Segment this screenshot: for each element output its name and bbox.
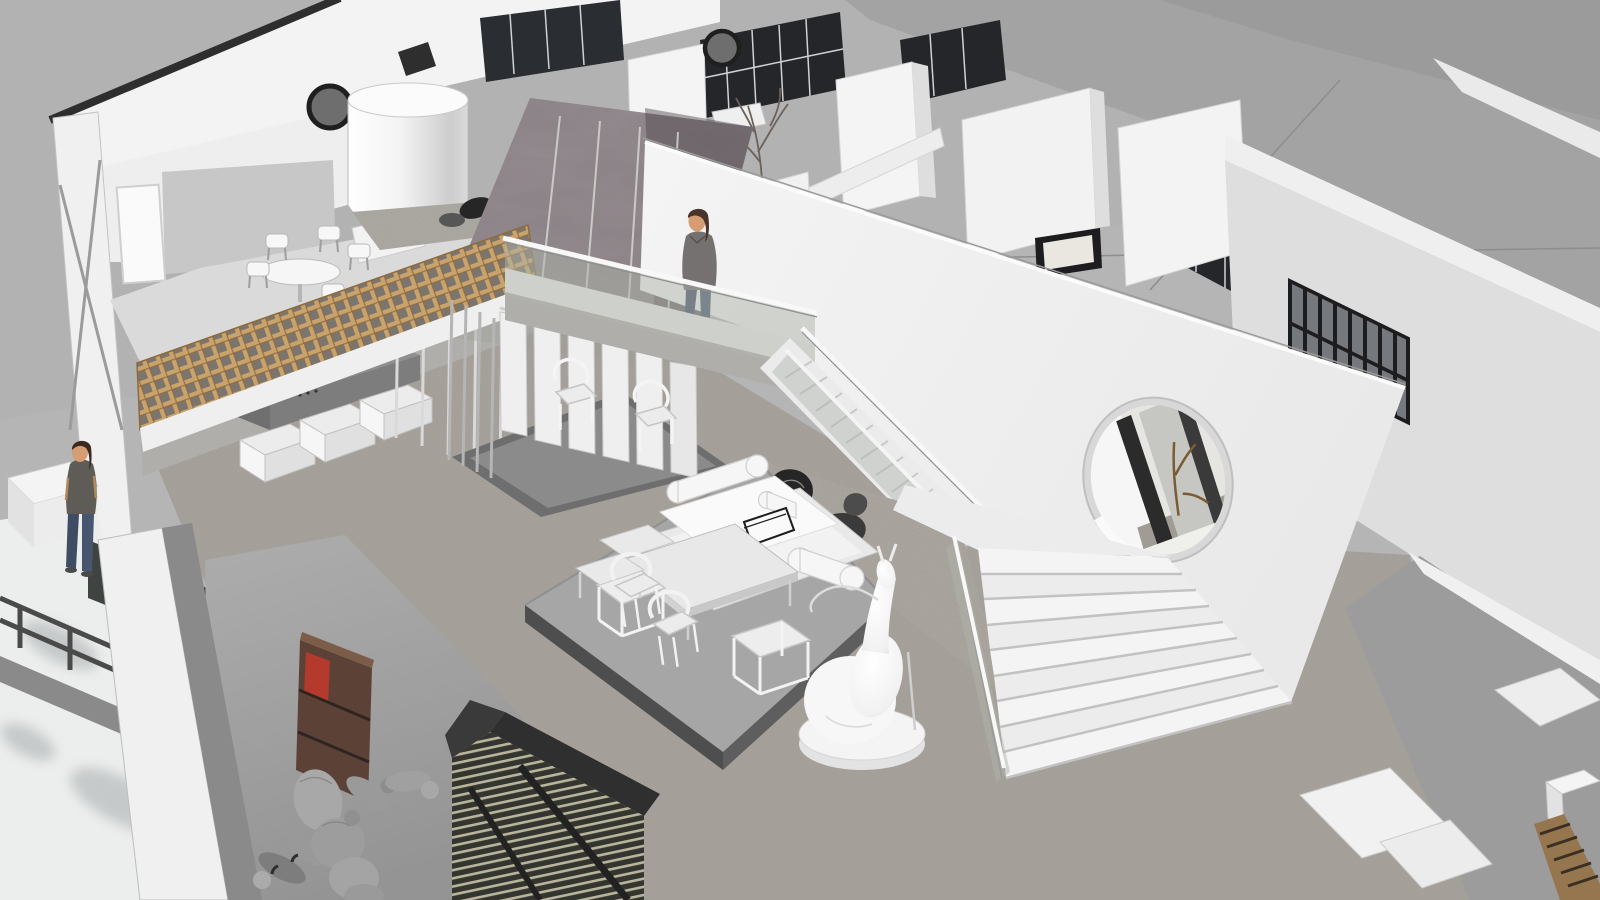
wall-frame (117, 185, 166, 284)
render-viewport (0, 0, 1600, 900)
porthole-window-2 (705, 31, 739, 65)
dark-top (66, 460, 97, 515)
round-table (260, 259, 340, 285)
rock (439, 213, 465, 227)
porthole-window (309, 86, 351, 128)
loft-interior-rendering (0, 0, 1600, 900)
